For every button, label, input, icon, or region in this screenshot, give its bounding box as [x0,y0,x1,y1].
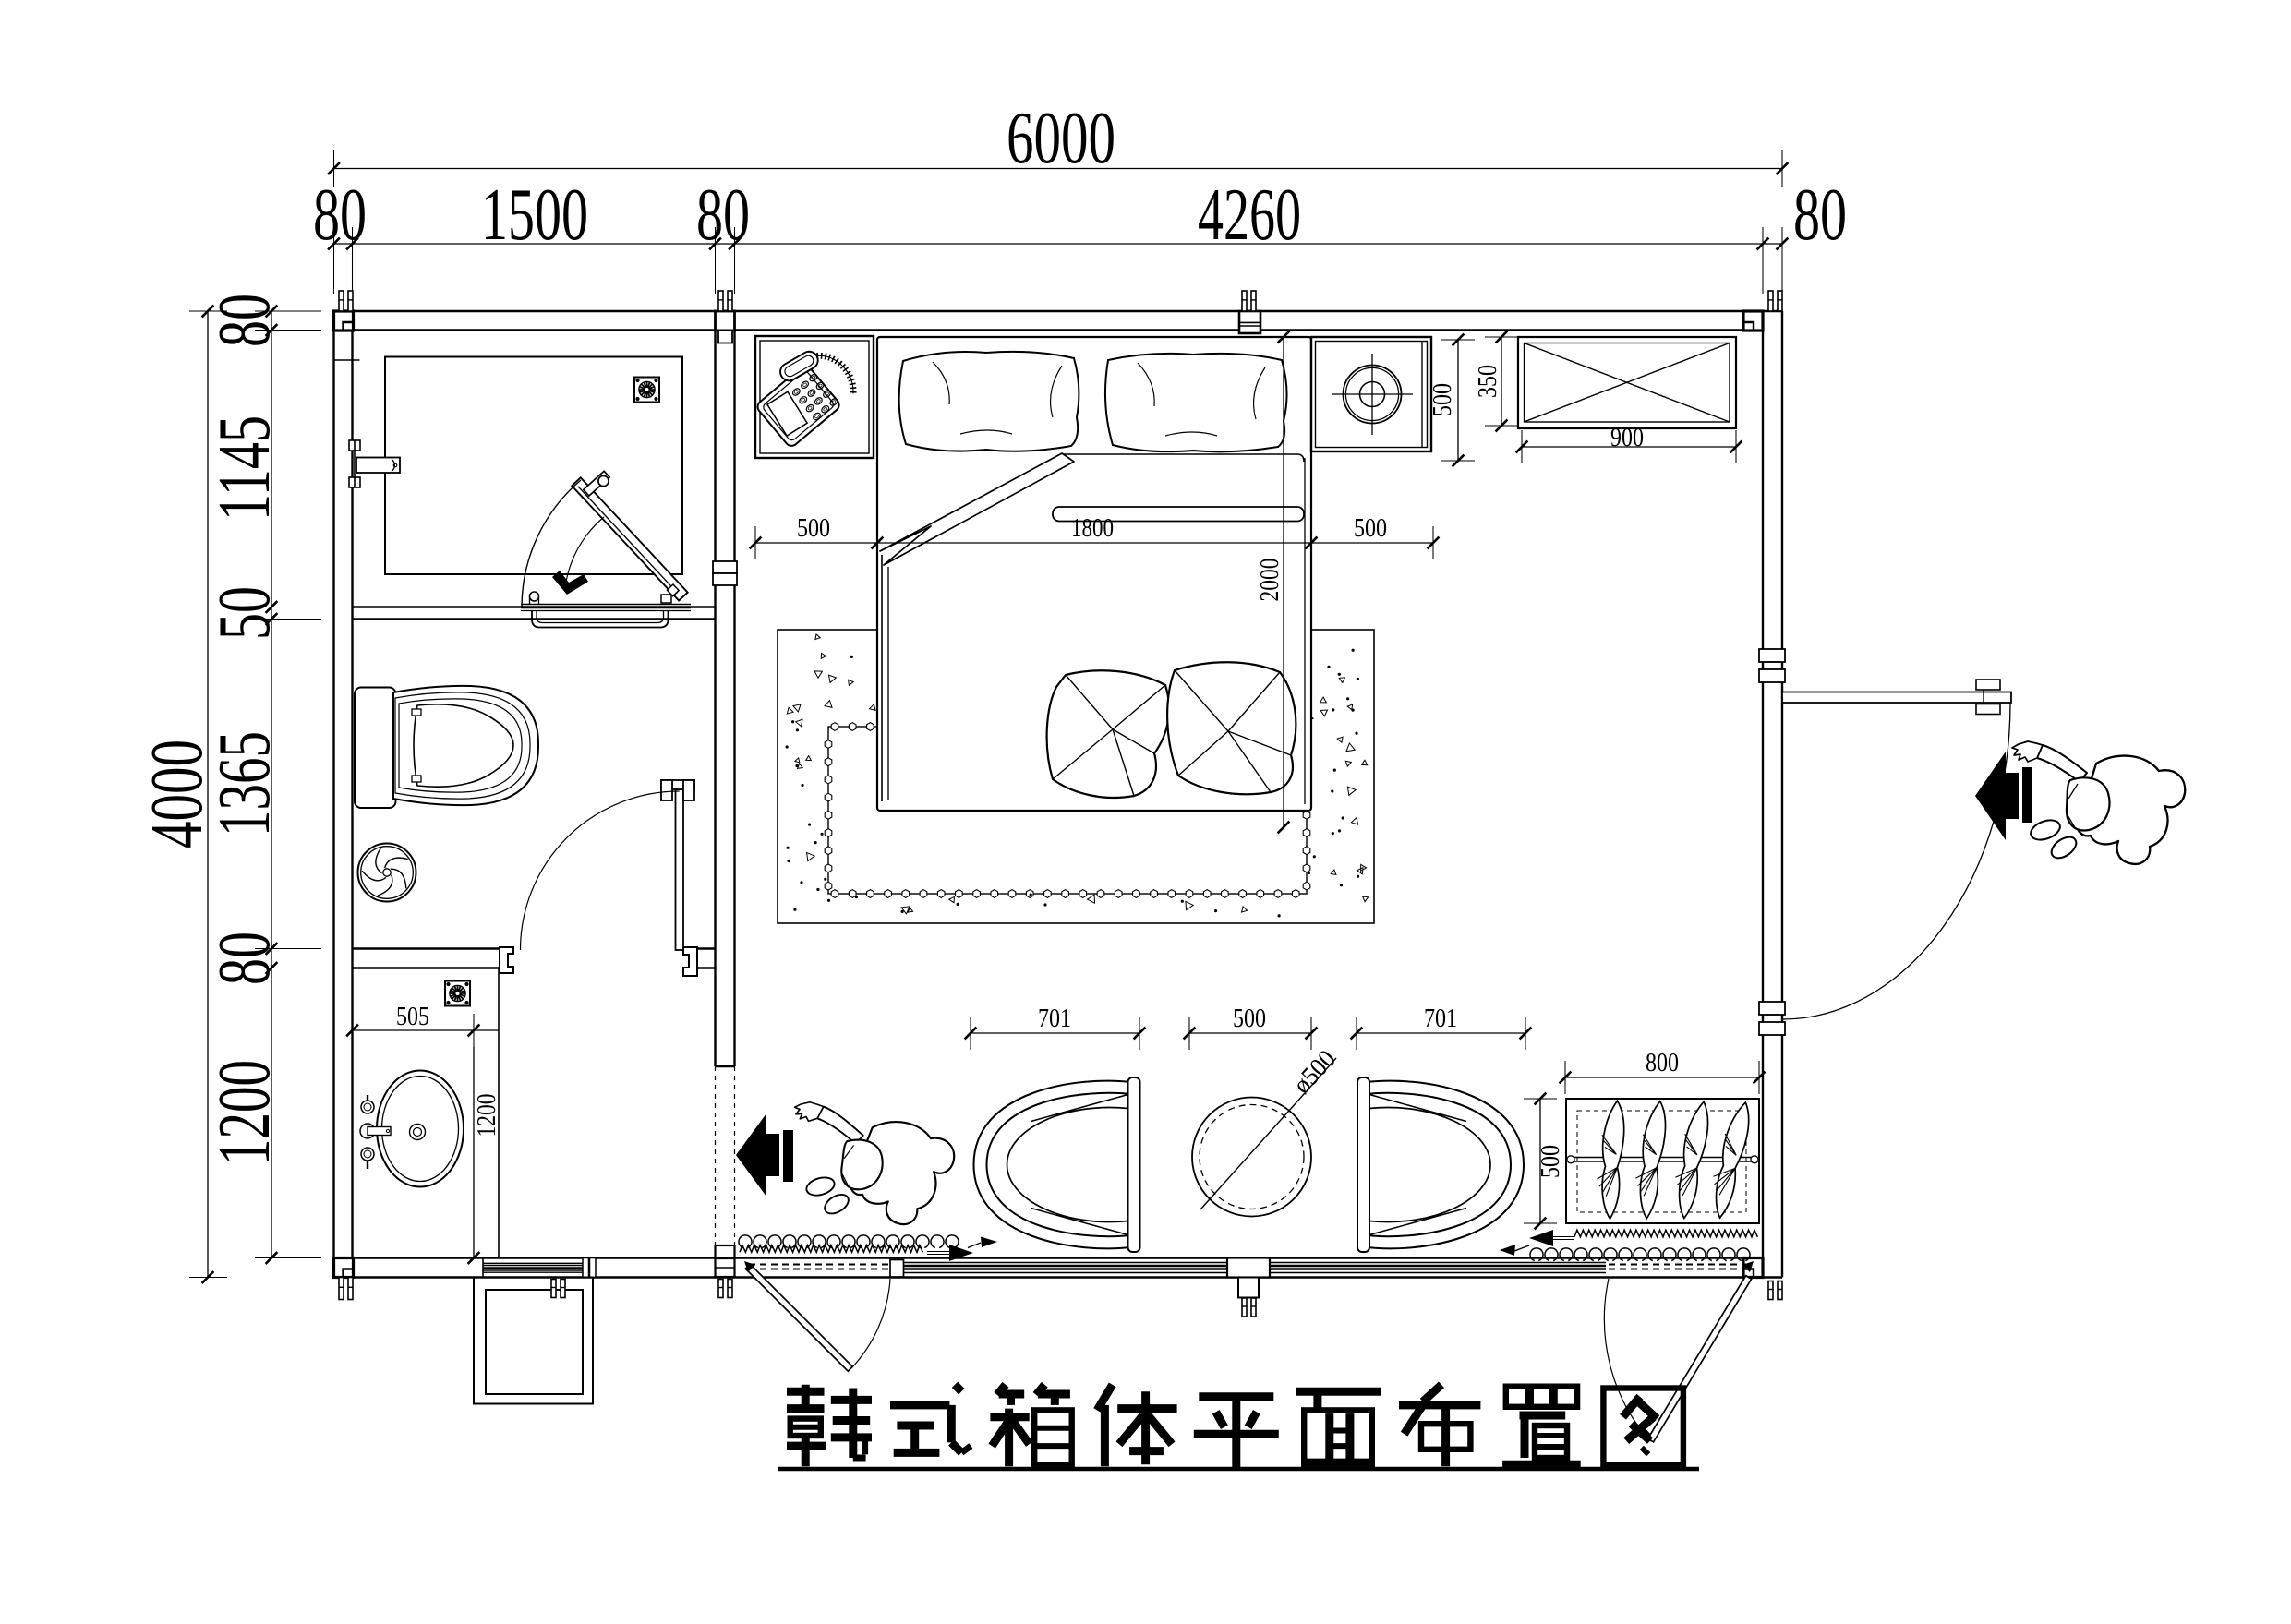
svg-text:1500: 1500 [481,174,588,256]
svg-text:500: 500 [1429,383,1457,416]
svg-text:4260: 4260 [1198,174,1301,256]
svg-text:505: 505 [396,1003,429,1031]
svg-text:350: 350 [1474,365,1502,398]
svg-text:50: 50 [204,586,285,640]
svg-text:500: 500 [1233,1004,1266,1033]
svg-text:80: 80 [204,932,285,985]
svg-text:80: 80 [313,174,367,256]
svg-text:1200: 1200 [204,1060,285,1165]
svg-text:1200: 1200 [473,1094,501,1137]
svg-text:1800: 1800 [1071,514,1114,543]
svg-text:6000: 6000 [1007,98,1115,179]
svg-text:900: 900 [1610,424,1644,452]
svg-text:500: 500 [797,514,830,543]
svg-text:800: 800 [1646,1049,1679,1077]
svg-text:1145: 1145 [204,415,285,521]
svg-text:80: 80 [204,294,285,347]
svg-text:500: 500 [1537,1145,1565,1178]
svg-text:80: 80 [1793,174,1847,256]
svg-text:1365: 1365 [204,731,285,836]
svg-text:701: 701 [1424,1004,1457,1033]
svg-text:500: 500 [1354,514,1387,543]
svg-text:701: 701 [1038,1004,1071,1033]
svg-text:2000: 2000 [1256,559,1284,602]
svg-text:80: 80 [696,174,750,256]
